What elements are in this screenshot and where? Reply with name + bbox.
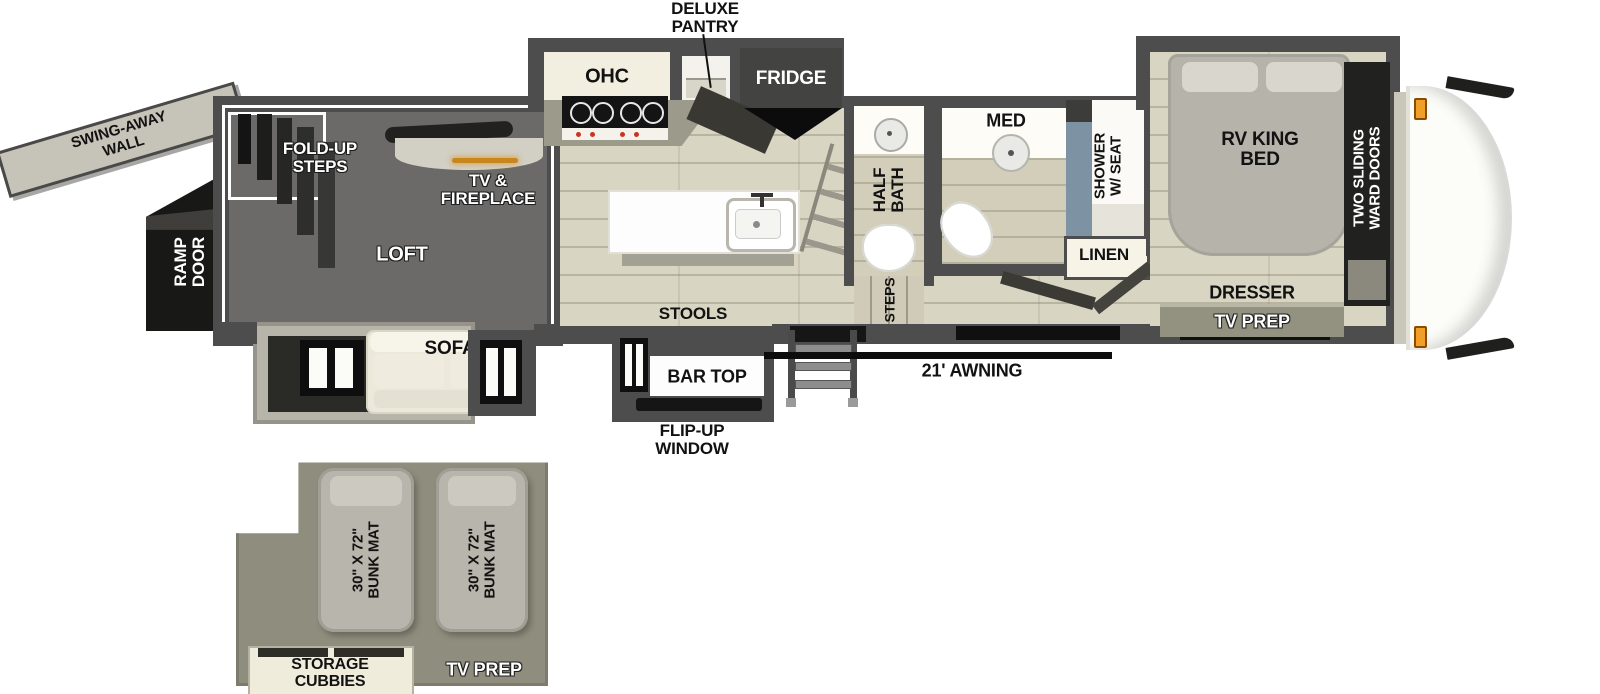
loft-label: LOFT	[376, 245, 427, 266]
pillow	[1182, 62, 1258, 92]
bedroom-top-wall	[1136, 36, 1398, 52]
cap-rim-bottom	[1445, 336, 1514, 360]
shower-label: SHOWER W/ SEAT	[1092, 133, 1124, 199]
sofa-slide-window	[300, 340, 364, 396]
storage-cubbies-label: STORAGE CUBBIES	[291, 657, 368, 691]
linen-label: LINEN	[1079, 246, 1129, 264]
ohc-label: OHC	[585, 67, 629, 88]
cooktop	[562, 96, 668, 128]
bottom-wall-mid	[534, 324, 614, 344]
fireplace-glow	[452, 158, 518, 163]
ramp-door-label: RAMP DOOR	[172, 237, 208, 287]
bunk-pillow	[448, 476, 516, 506]
half-bath-toilet	[862, 224, 916, 272]
awning-label: 21' AWNING	[922, 362, 1023, 381]
wardrobe-label: TWO SLIDING WARD DOORS	[1351, 126, 1383, 229]
half-bath-sink-counter	[854, 106, 924, 154]
entry-steps	[786, 330, 860, 408]
pillow	[1266, 62, 1342, 92]
step-bar	[257, 114, 272, 180]
rv-king-bed-label: RV KING BED	[1221, 130, 1298, 170]
stools-label: STOOLS	[659, 305, 727, 323]
window-strip	[956, 326, 1120, 340]
bar-top-label: BAR TOP	[667, 368, 746, 387]
step-bar	[238, 114, 251, 164]
tv-fireplace-label: TV & FIREPLACE	[441, 172, 536, 208]
marker-light	[1414, 98, 1427, 120]
fireplace-mantel	[395, 138, 543, 170]
dresser-label: DRESSER	[1209, 284, 1295, 303]
rv-floorplan: SWING-AWAY WALL RAMP DOOR FOLD-UP STEPS …	[0, 0, 1600, 694]
bottom-wall-rear	[213, 322, 257, 344]
fridge-label: FRIDGE	[756, 69, 827, 89]
deluxe-pantry-label: DELUXE PANTRY	[671, 0, 739, 36]
front-cap	[1406, 86, 1510, 350]
awning-line	[764, 352, 1112, 359]
bar-slide-window	[620, 338, 648, 392]
bunk-pillow	[330, 476, 402, 506]
bedroom-tv-prep-label: TV PREP	[1214, 313, 1290, 332]
stove-knob-strip	[562, 128, 668, 140]
bunk-mat-label: 30" X 72" BUNK MAT	[466, 521, 498, 598]
bar-counter-dark	[636, 398, 762, 411]
steps-label: STEPS	[883, 278, 898, 323]
side-wall-window	[468, 330, 536, 416]
half-bath-label: HALF BATH	[871, 167, 907, 212]
bunk-mat-label: 30" X 72" BUNK MAT	[350, 521, 382, 598]
swing-away-wall: SWING-AWAY WALL	[0, 82, 247, 198]
bath-sink	[992, 134, 1030, 172]
fold-up-steps-label: FOLD-UP STEPS	[283, 140, 357, 176]
loft-plan-tv-prep-label: TV PREP	[446, 661, 522, 680]
med-cabinet-label: MED	[986, 112, 1025, 131]
marker-light	[1414, 326, 1427, 348]
island-sink	[726, 198, 796, 252]
flip-up-window-label: FLIP-UP WINDOW	[655, 422, 728, 458]
